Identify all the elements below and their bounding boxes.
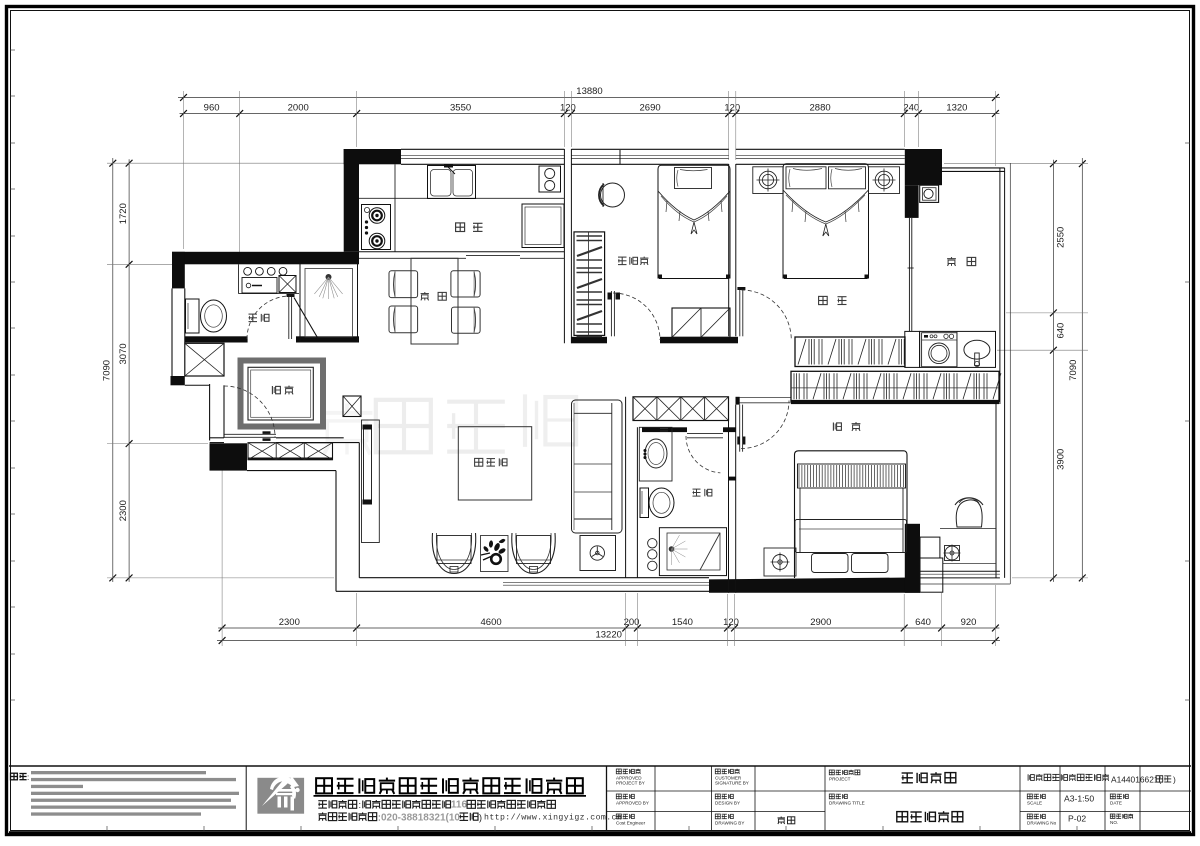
svg-text:A3-1:50: A3-1:50 (1064, 794, 1094, 804)
svg-text:DATE: DATE (1110, 801, 1122, 806)
svg-text:P-02: P-02 (1068, 814, 1086, 824)
svg-text:3070: 3070 (118, 343, 129, 364)
svg-text:1720: 1720 (118, 203, 129, 224)
svg-text:020-38818321(10: 020-38818321(10 (381, 812, 460, 823)
svg-text:2300: 2300 (118, 500, 129, 521)
svg-text:1540: 1540 (672, 617, 693, 628)
svg-text:3900: 3900 (1056, 449, 1067, 470)
svg-text:4600: 4600 (481, 617, 502, 628)
svg-text:A144016621(: A144016621( (1111, 775, 1162, 785)
svg-text:2900: 2900 (810, 617, 831, 628)
svg-text:APPROVED BY: APPROVED BY (616, 801, 649, 806)
svg-text:SCALE: SCALE (1027, 801, 1042, 806)
svg-text:120: 120 (724, 102, 740, 113)
svg-text:DESIGN BY: DESIGN BY (715, 801, 740, 806)
svg-text:1320: 1320 (946, 102, 967, 113)
svg-text:PROJECT: PROJECT (829, 777, 851, 782)
svg-text:7090: 7090 (102, 360, 113, 381)
svg-text:120: 120 (723, 617, 739, 628)
svg-text:NO.: NO. (1110, 820, 1118, 825)
svg-text:120: 120 (560, 102, 576, 113)
svg-text:960: 960 (204, 102, 220, 113)
svg-text:116: 116 (451, 800, 468, 811)
svg-text:13880: 13880 (576, 86, 602, 97)
svg-text::: : (359, 800, 362, 810)
svg-text:3550: 3550 (450, 102, 471, 113)
svg-text:SIGNATURE BY: SIGNATURE BY (715, 781, 749, 786)
svg-text::: : (27, 773, 29, 782)
svg-text:13220: 13220 (595, 630, 621, 641)
svg-text:640: 640 (915, 617, 931, 628)
svg-text:2550: 2550 (1056, 227, 1067, 248)
svg-text:DRAWING BY: DRAWING BY (715, 821, 744, 826)
svg-text:7090: 7090 (1068, 360, 1079, 381)
svg-text:): ) (1173, 775, 1176, 785)
svg-text:2000: 2000 (288, 102, 309, 113)
svg-text:240: 240 (903, 102, 919, 113)
svg-text:2300: 2300 (279, 617, 300, 628)
svg-text:2880: 2880 (810, 102, 831, 113)
svg-text:920: 920 (961, 617, 977, 628)
svg-text:http://www.xingyigz.com.cn: http://www.xingyigz.com.cn (484, 813, 622, 823)
svg-text:PROJECT BY: PROJECT BY (616, 781, 645, 786)
svg-text:640: 640 (1056, 323, 1067, 339)
svg-text:Cost Engineer: Cost Engineer (616, 821, 646, 826)
svg-text:): ) (479, 812, 482, 822)
svg-text:DRAWING TITLE: DRAWING TITLE (829, 801, 865, 806)
svg-text:DRAWING No: DRAWING No (1027, 821, 1057, 826)
svg-text:2690: 2690 (640, 102, 661, 113)
